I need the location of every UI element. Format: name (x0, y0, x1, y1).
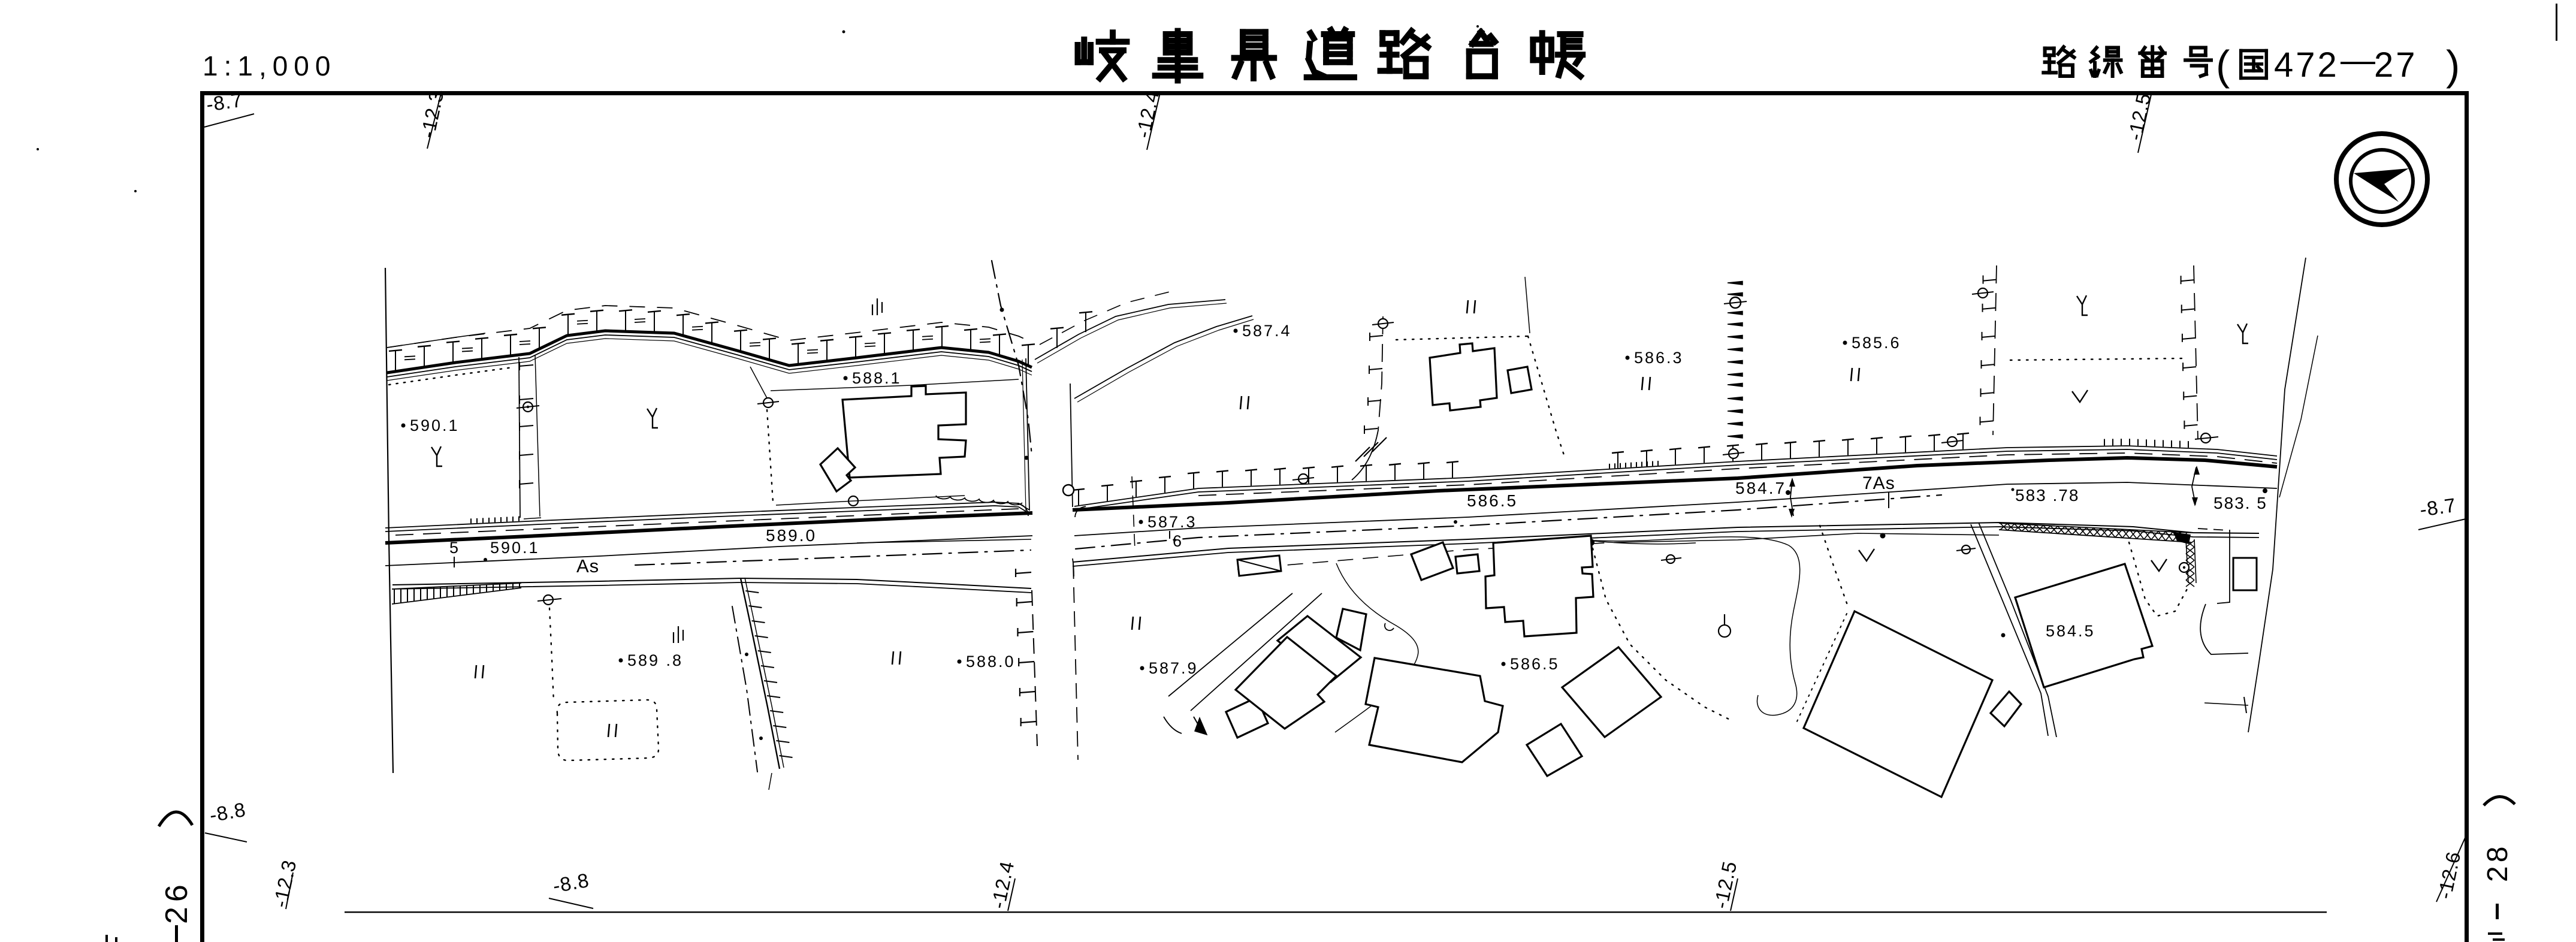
svg-text:586.3: 586.3 (1634, 349, 1684, 367)
svg-text:586.5: 586.5 (1510, 655, 1560, 673)
svg-text:584.7: 584.7 (1735, 479, 1786, 497)
svg-text:587.4: 587.4 (1242, 322, 1292, 340)
svg-text:(: ( (2216, 42, 2230, 89)
svg-text:587.3: 587.3 (1147, 513, 1197, 531)
svg-text:6: 6 (1173, 532, 1182, 550)
svg-text:584.5: 584.5 (2046, 622, 2095, 640)
svg-text:583 .78: 583 .78 (2015, 486, 2079, 505)
svg-text:26: 26 (159, 880, 194, 924)
svg-text:27: 27 (2374, 46, 2418, 84)
svg-text:7As: 7As (1862, 473, 1895, 493)
svg-text:588.0: 588.0 (966, 653, 1016, 671)
svg-text:590.1: 590.1 (410, 416, 460, 434)
svg-text:28: 28 (2482, 843, 2514, 882)
svg-text:585.6: 585.6 (1852, 334, 1901, 352)
svg-text:587.9: 587.9 (1149, 659, 1198, 677)
svg-text:589.0: 589.0 (766, 526, 817, 545)
svg-text:586.5: 586.5 (1467, 491, 1518, 510)
svg-text:589 .8: 589 .8 (627, 651, 683, 669)
svg-text:5: 5 (449, 539, 458, 557)
svg-text:588.1: 588.1 (852, 369, 902, 387)
svg-text:—: — (2341, 41, 2375, 80)
svg-text:As: As (576, 555, 599, 576)
svg-text:590.1: 590.1 (490, 539, 540, 557)
svg-text:): ) (2446, 42, 2460, 89)
svg-text:1:1,000: 1:1,000 (203, 50, 336, 81)
svg-text:583. 5: 583. 5 (2213, 494, 2267, 512)
svg-text:472: 472 (2274, 46, 2339, 84)
